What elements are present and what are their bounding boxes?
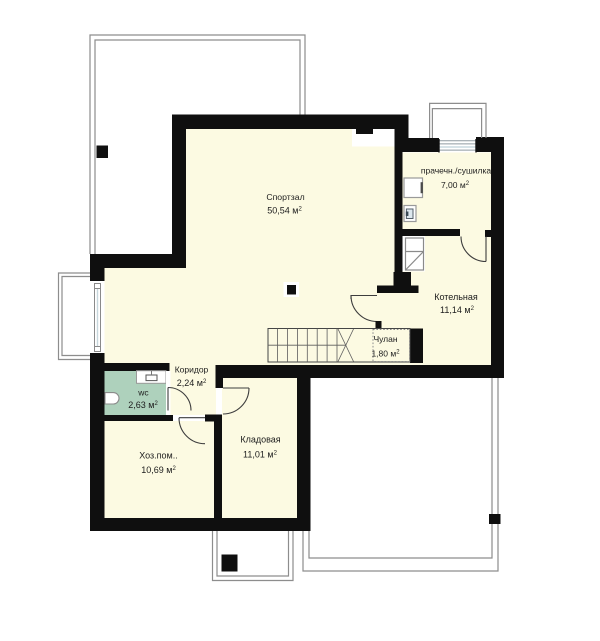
svg-text:прачечн./сушилка: прачечн./сушилка [421,166,492,176]
svg-text:2,63 м2: 2,63 м2 [128,400,158,410]
svg-text:50,54 м2: 50,54 м2 [267,206,302,216]
svg-text:Спортзал: Спортзал [266,192,304,202]
svg-text:Котельная: Котельная [434,292,478,302]
svg-text:Кладовая: Кладовая [240,435,280,445]
svg-text:2,24 м2: 2,24 м2 [177,378,207,388]
svg-text:10,69 м2: 10,69 м2 [141,465,176,475]
svg-text:11,14 м2: 11,14 м2 [440,305,475,315]
svg-text:Хоз.пом..: Хоз.пом.. [139,451,178,461]
svg-text:Чулан: Чулан [373,334,397,344]
svg-text:wc: wc [137,388,149,398]
svg-text:11,01 м2: 11,01 м2 [243,450,278,460]
svg-text:Коридор: Коридор [175,365,209,375]
svg-text:7,00 м2: 7,00 м2 [441,180,470,190]
svg-text:1,80 м2: 1,80 м2 [371,349,400,359]
